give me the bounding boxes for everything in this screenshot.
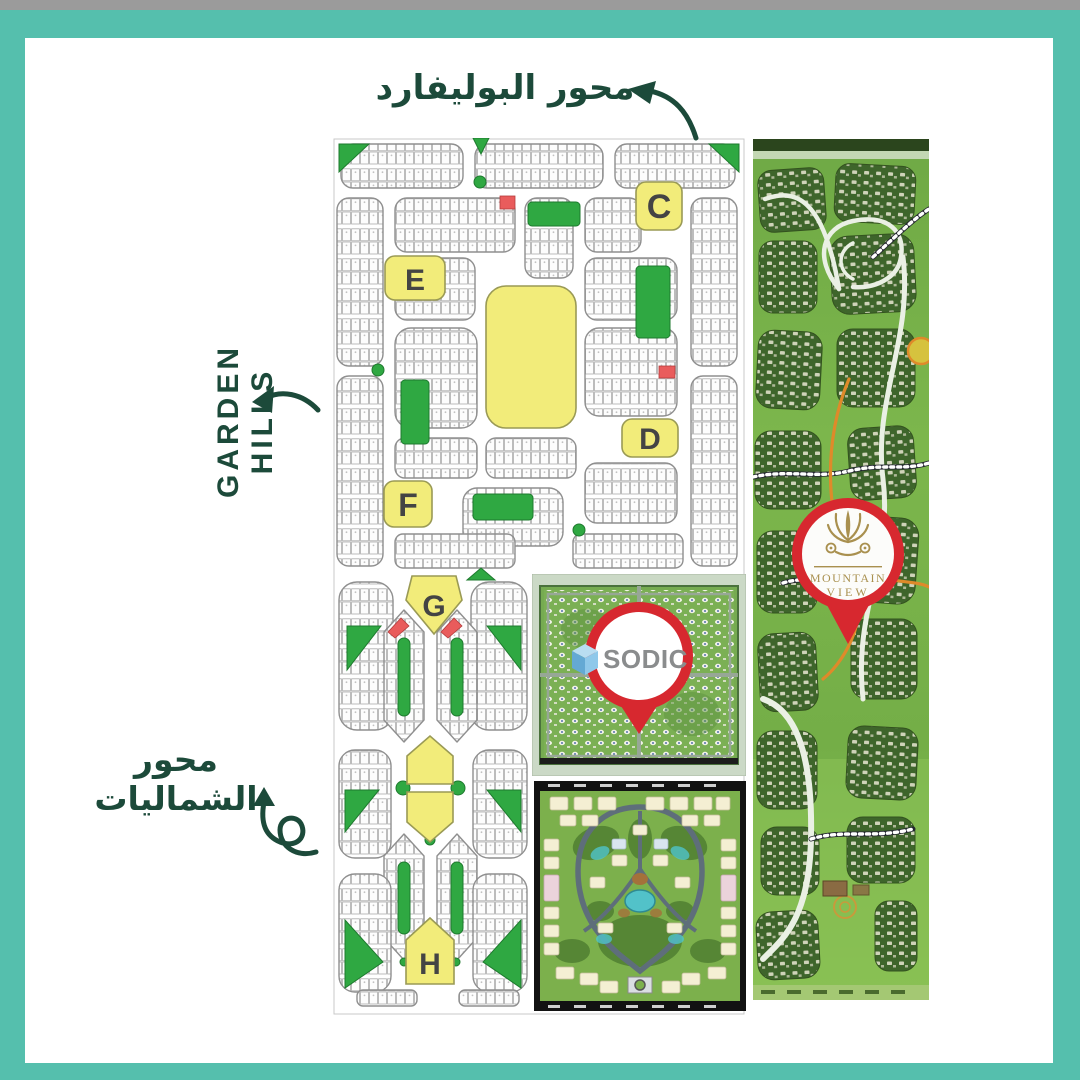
mountain-view-logo-text-line1: MOUNTAIN [810,571,886,585]
svg-text:C: C [647,188,672,226]
poster-canvas: C E D F [0,0,1080,1080]
sodic-logo-text: SODIC [603,644,688,674]
garden-hills-arrow [250,380,322,428]
boulevard-axis-label: محور البوليفارد [372,68,638,108]
compound-masterplan-image [534,781,746,1011]
central-park-yellow [486,286,576,428]
svg-text:D: D [639,423,661,456]
northern-axis-arrow [236,786,326,891]
svg-text:F: F [398,487,418,523]
boulevard-axis-arrow [618,80,703,142]
mountain-view-logo-text-line2: VIEW [826,585,869,599]
garden-hills-label: GARDEN HILLS [212,286,254,556]
top-gray-bar [0,0,1080,10]
mountain-view-pin[interactable]: MOUNTAIN VIEW [786,492,910,656]
zone-label-c: C [636,182,682,230]
svg-text:H: H [419,948,441,981]
svg-text:G: G [422,590,445,623]
svg-text:E: E [405,264,425,297]
sodic-inset-map: SODIC [532,574,746,776]
compound-entrance [628,977,652,993]
zone-label-f: F [384,481,432,527]
zone-label-d: D [622,419,678,457]
zone-label-e: E [385,256,445,300]
mountain-view-divider [814,566,882,567]
satellite-top-band [753,139,929,151]
